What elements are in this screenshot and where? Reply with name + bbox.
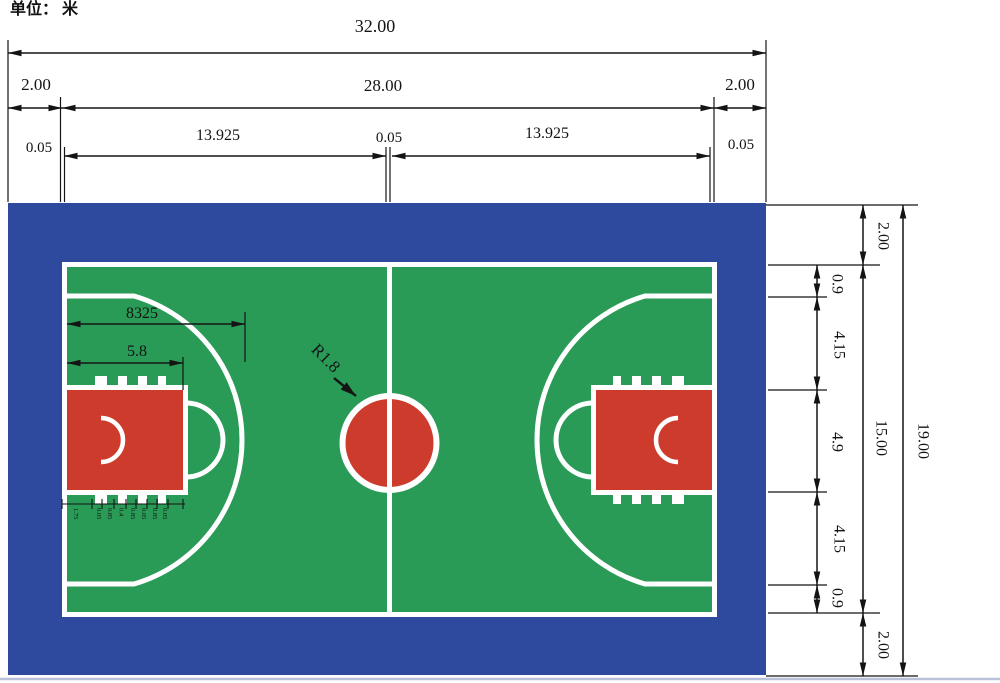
dim-buffer-bottom: 2.00 <box>874 631 891 659</box>
lane-dim-7: 0.05 <box>161 508 168 519</box>
dim-wing-bottom: 4.15 <box>830 525 847 553</box>
dim-key-width: 4.9 <box>828 432 845 452</box>
dim-line-width-right: 0.05 <box>728 137 754 153</box>
dim-half-left: 13.925 <box>196 127 240 144</box>
dim-buffer-right: 2.00 <box>725 75 755 94</box>
lane-dim-3: 0.4 <box>118 508 125 517</box>
lane-dim-4: 0.85 <box>129 508 136 519</box>
lane-dim-2: 0.85 <box>106 508 113 519</box>
dimension-labels-right: 2.00 0.9 4.15 4.9 4.15 0.9 2.00 15.00 19… <box>828 222 931 659</box>
lane-dim-5: 0.05 <box>140 508 147 519</box>
dimension-labels-top: 32.00 2.00 28.00 2.00 0.05 13.925 0.05 1… <box>21 16 755 156</box>
dim-gap-top: 0.9 <box>828 274 845 294</box>
dim-overall-width: 32.00 <box>355 16 396 36</box>
court-field <box>8 203 766 675</box>
basketball-court-diagram: 单位： 米 <box>0 0 1000 683</box>
dim-gap-bottom: 0.9 <box>828 588 845 608</box>
dim-wing-top: 4.15 <box>830 331 847 359</box>
dim-court-width: 28.00 <box>364 76 402 95</box>
dim-key-length: 5.8 <box>127 343 147 360</box>
dim-buffer-left: 2.00 <box>21 75 51 94</box>
dim-overall-height: 19.00 <box>914 423 931 459</box>
dim-line-width-left: 0.05 <box>26 140 52 156</box>
dim-line-width-center: 0.05 <box>376 130 402 146</box>
dim-buffer-top: 2.00 <box>874 222 891 250</box>
diagram-canvas: 单位： 米 <box>0 0 1000 683</box>
dim-arc-reach: 8325 <box>126 305 158 322</box>
dim-court-height: 15.00 <box>872 420 889 456</box>
lane-dim-1: 0.05 <box>95 508 102 519</box>
unit-label: 单位： 米 <box>10 0 79 18</box>
lane-dim-0: 1.75 <box>72 508 79 519</box>
lane-dim-6: 0.85 <box>151 508 158 519</box>
center-line <box>387 267 392 612</box>
dim-half-right: 13.925 <box>525 125 569 142</box>
